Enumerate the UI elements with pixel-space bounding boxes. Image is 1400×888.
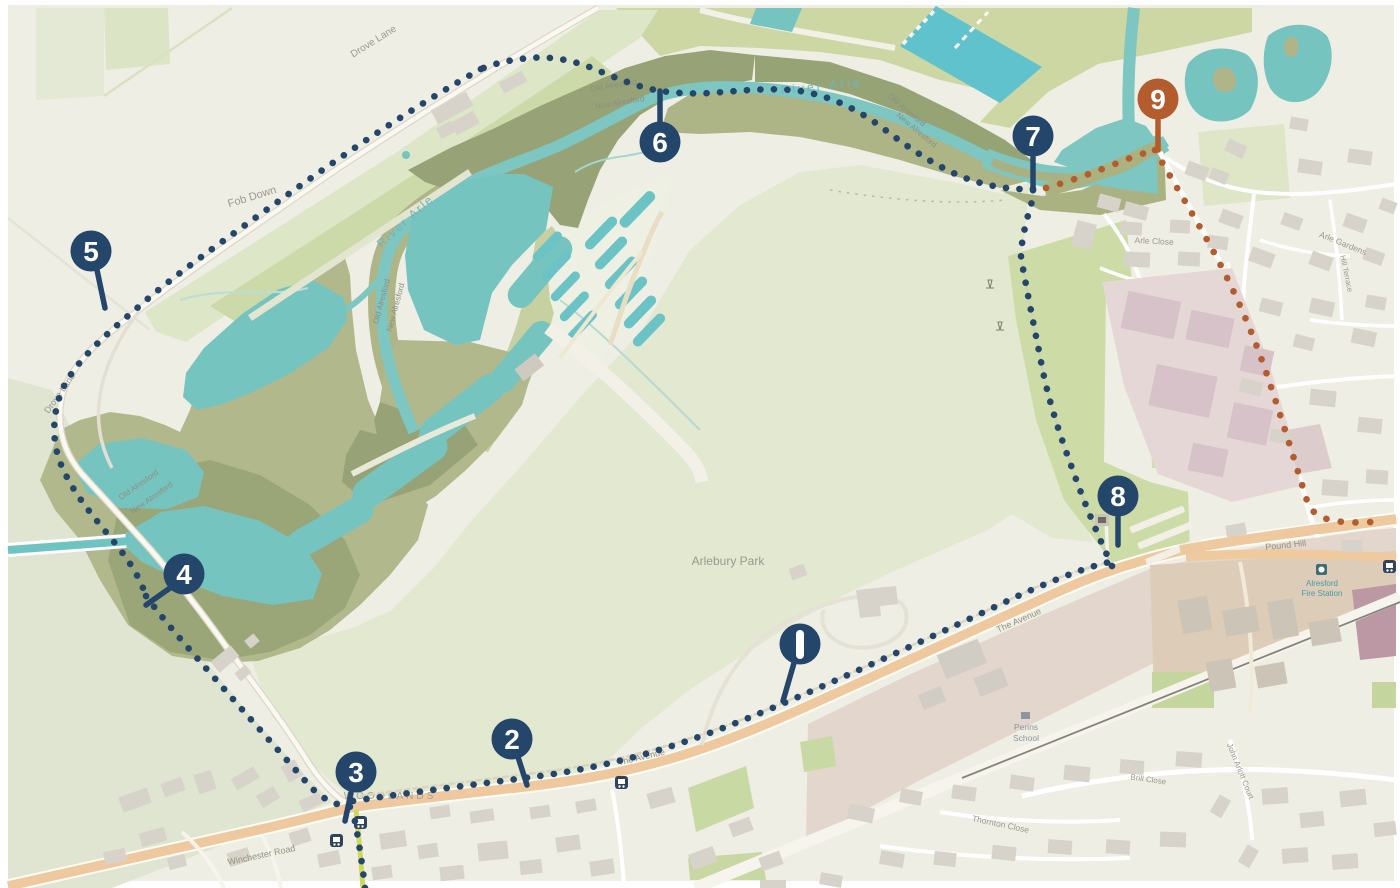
svg-text:5: 5 bbox=[83, 236, 99, 267]
svg-text:9: 9 bbox=[1150, 84, 1166, 115]
svg-text:Fire Station: Fire Station bbox=[1302, 589, 1343, 598]
svg-text:Arlebury Park: Arlebury Park bbox=[692, 554, 766, 568]
svg-text:Arle Close: Arle Close bbox=[1134, 235, 1174, 247]
svg-text:6: 6 bbox=[652, 127, 668, 158]
svg-text:8: 8 bbox=[1110, 481, 1126, 512]
svg-text:Perins: Perins bbox=[1014, 722, 1038, 732]
svg-text:School: School bbox=[1013, 733, 1039, 743]
svg-text:2: 2 bbox=[504, 724, 520, 755]
svg-text:3: 3 bbox=[348, 757, 364, 788]
svg-text:4: 4 bbox=[176, 559, 192, 590]
svg-text:7: 7 bbox=[1025, 121, 1041, 152]
svg-text:Alresford: Alresford bbox=[1306, 579, 1338, 588]
